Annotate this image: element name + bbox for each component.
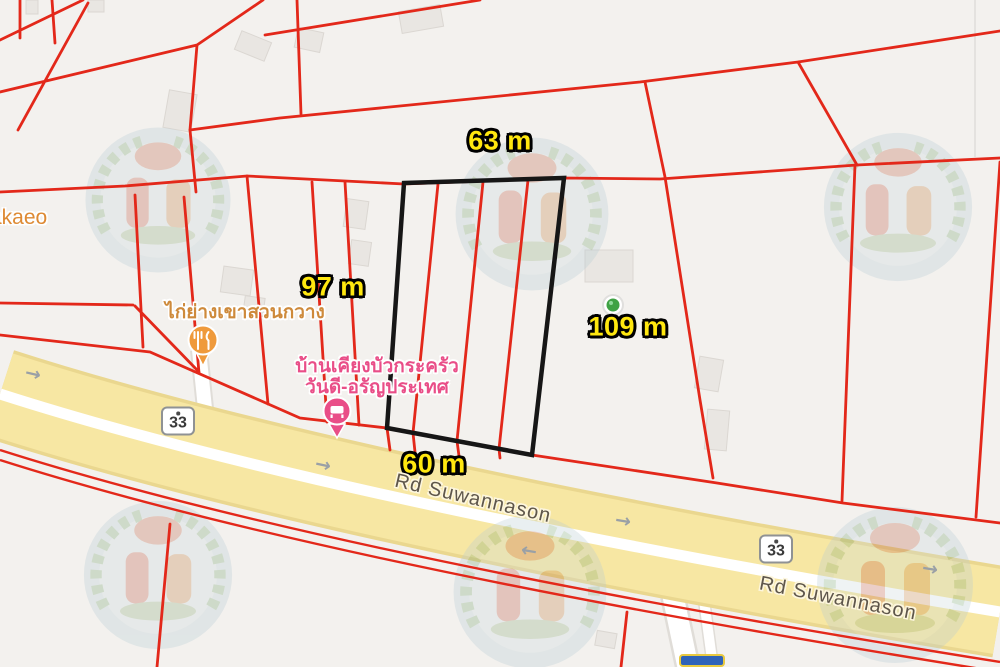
dimension-label-top: 63 m [468,126,532,157]
guesthouse-label-line2: วันดี-อรัญประเทศ [295,377,459,398]
restaurant-label[interactable]: ไก่ย่างเขาสวนกวาง [165,297,325,327]
guesthouse-label-line1: บ้านเคียงบัวกระครัว [295,356,459,377]
lane-arrow-icon: → [613,509,632,533]
badge-crest-dot [774,540,778,544]
badge-crest-dot [176,412,180,416]
dimension-label-right: 109 m [588,312,667,343]
lane-arrow-icon: → [920,557,939,581]
route-badge-33-east: 33 [759,535,793,564]
map-canvas[interactable] [0,0,1000,667]
map-viewport[interactable]: 63 m 97 m 109 m 60 m Rd Suwannason Rd Su… [0,0,1000,667]
guesthouse-label[interactable]: บ้านเคียงบัวกระครัว วันดี-อรัญประเทศ [295,356,459,398]
route-badge-33-west: 33 [161,407,195,436]
town-label-partial[interactable]: akaeo [0,206,47,230]
route-badge-partial [679,654,725,667]
